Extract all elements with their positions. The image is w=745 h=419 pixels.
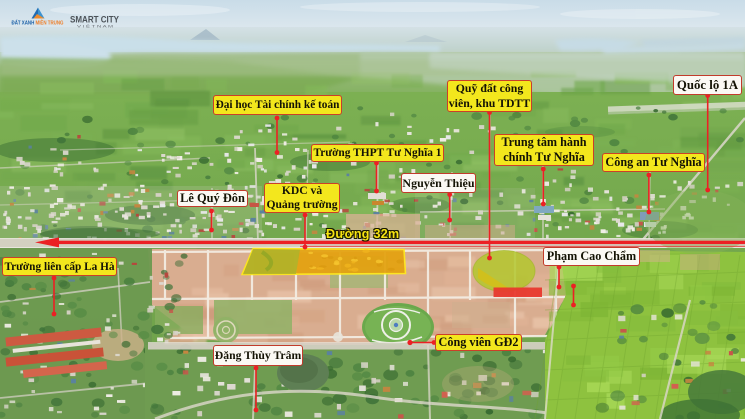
svg-text:ĐẤT XANH MIỀN TRUNG: ĐẤT XANH MIỀN TRUNG	[12, 20, 64, 27]
svg-text:V I Ệ T N A M: V I Ệ T N A M	[77, 24, 113, 29]
